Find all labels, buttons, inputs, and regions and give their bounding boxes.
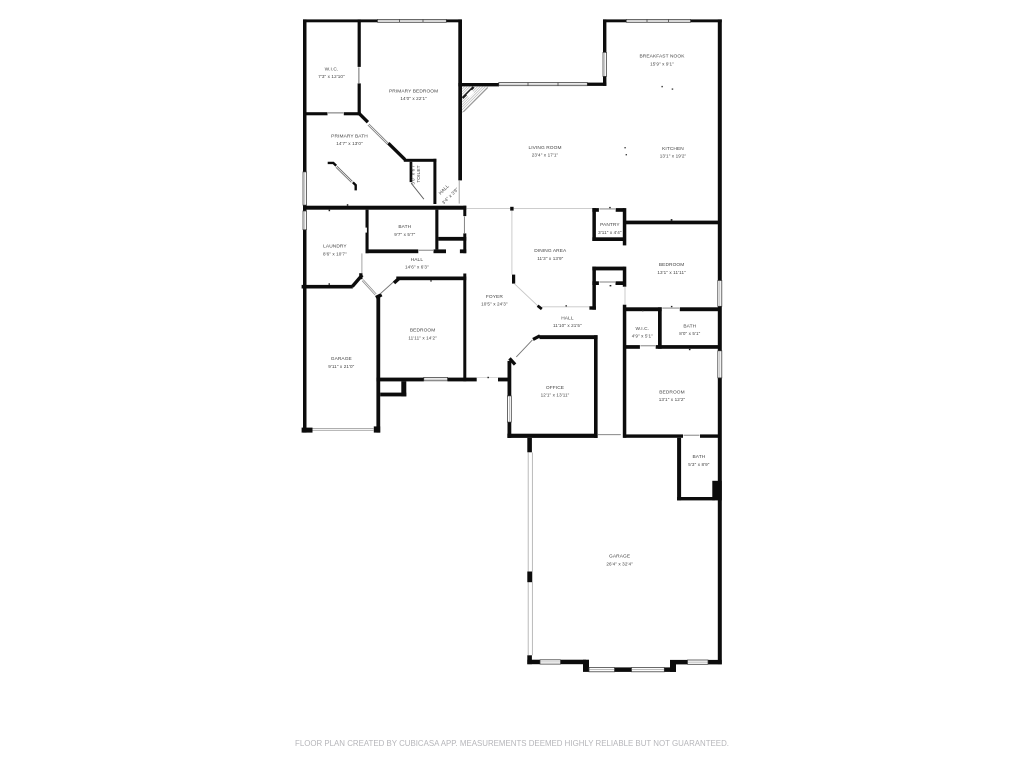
- svg-text:11'3" x 13'9": 11'3" x 13'9": [537, 256, 563, 261]
- svg-text:15'9" x 9'1": 15'9" x 9'1": [650, 61, 674, 66]
- svg-text:W.I.C.: W.I.C.: [325, 66, 339, 72]
- svg-text:TOILET: TOILET: [416, 165, 422, 182]
- svg-text:LIVING ROOM: LIVING ROOM: [528, 145, 561, 151]
- svg-text:14'0" x 22'1": 14'0" x 22'1": [400, 96, 427, 101]
- svg-text:11'10" x 21'5": 11'10" x 21'5": [553, 323, 582, 328]
- svg-text:8'6" x 10'7": 8'6" x 10'7": [323, 251, 347, 256]
- svg-text:12'1" x 13'11": 12'1" x 13'11": [541, 393, 570, 398]
- svg-text:4'9" x 5'1": 4'9" x 5'1": [632, 334, 653, 339]
- svg-text:3'11" x 4'4": 3'11" x 4'4": [598, 230, 622, 235]
- svg-text:HALL: HALL: [411, 257, 424, 263]
- svg-text:7'3" x 12'10": 7'3" x 12'10": [318, 74, 345, 79]
- svg-text:9'11" x 21'0": 9'11" x 21'0": [328, 364, 354, 369]
- svg-text:GARAGE: GARAGE: [609, 554, 630, 560]
- svg-text:BEDROOM: BEDROOM: [659, 262, 685, 268]
- svg-text:GARAGE: GARAGE: [331, 356, 352, 362]
- svg-text:PRIMARY BATH: PRIMARY BATH: [331, 133, 368, 139]
- svg-text:BATH: BATH: [692, 454, 705, 460]
- svg-text:KITCHEN: KITCHEN: [662, 146, 684, 152]
- svg-text:BEDROOM: BEDROOM: [659, 389, 685, 395]
- svg-text:3'0" x 6'7": 3'0" x 6'7": [411, 163, 416, 184]
- svg-text:LAUNDRY: LAUNDRY: [323, 244, 347, 250]
- svg-text:BATH: BATH: [683, 324, 696, 330]
- svg-text:11'11" x 14'2": 11'11" x 14'2": [408, 335, 437, 340]
- svg-text:13'1" x 19'2": 13'1" x 19'2": [660, 154, 687, 159]
- svg-text:5'3" x 8'9": 5'3" x 8'9": [688, 462, 709, 467]
- svg-text:FLOOR PLAN CREATED BY CUBICASA: FLOOR PLAN CREATED BY CUBICASA APP. MEAS…: [295, 739, 729, 748]
- svg-text:FOYER: FOYER: [486, 294, 503, 300]
- svg-text:BATH: BATH: [398, 224, 411, 230]
- svg-text:BREAKFAST NOOK: BREAKFAST NOOK: [639, 54, 685, 60]
- svg-text:14'6" x 6'3": 14'6" x 6'3": [405, 265, 429, 270]
- svg-text:8'0" x 5'1": 8'0" x 5'1": [679, 331, 700, 336]
- svg-text:OFFICE: OFFICE: [546, 385, 564, 391]
- svg-text:W.I.C.: W.I.C.: [635, 326, 649, 332]
- svg-text:13'1" x 12'2": 13'1" x 12'2": [659, 397, 686, 402]
- svg-text:BEDROOM: BEDROOM: [410, 328, 436, 334]
- svg-text:23'4" x 17'1": 23'4" x 17'1": [532, 153, 559, 158]
- svg-text:10'5" x 24'3": 10'5" x 24'3": [481, 302, 508, 307]
- svg-text:14'7" x 13'0": 14'7" x 13'0": [336, 141, 363, 146]
- svg-text:HALL: HALL: [561, 316, 574, 322]
- svg-text:13'1" x 11'11": 13'1" x 11'11": [657, 270, 686, 275]
- svg-text:9'7" x 5'7": 9'7" x 5'7": [394, 232, 415, 237]
- svg-text:DINING AREA: DINING AREA: [534, 248, 567, 254]
- svg-text:26'4" x 32'4": 26'4" x 32'4": [606, 561, 633, 566]
- svg-text:PANTRY: PANTRY: [600, 222, 620, 228]
- svg-text:PRIMARY BEDROOM: PRIMARY BEDROOM: [389, 89, 438, 95]
